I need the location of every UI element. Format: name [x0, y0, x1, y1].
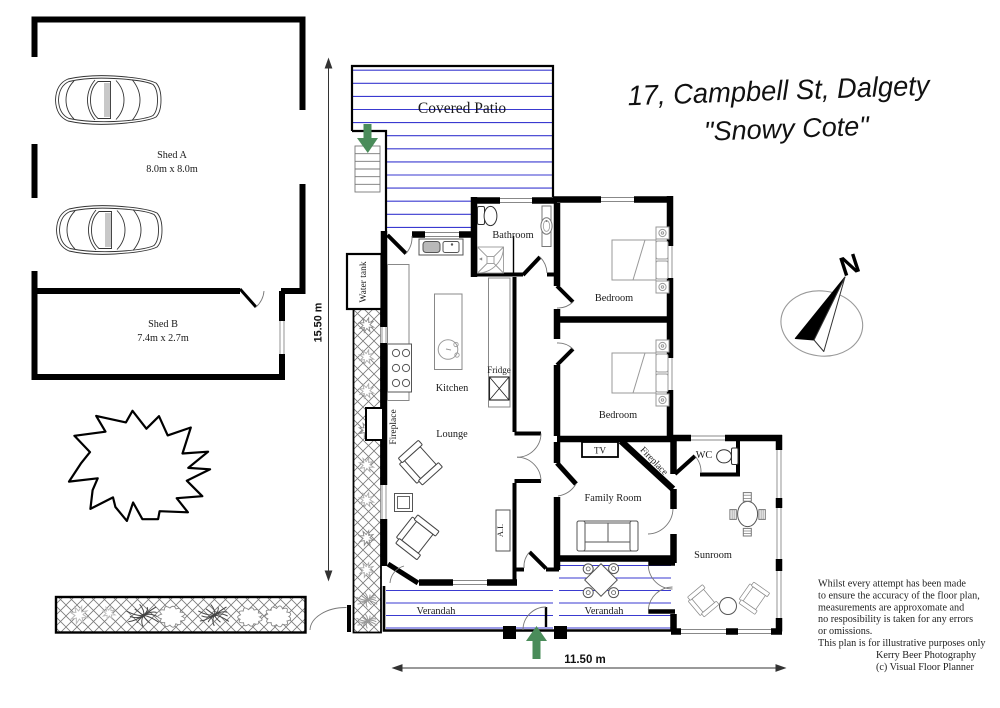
svg-text:measurements are approxomate a: measurements are approxomate and — [818, 602, 964, 613]
svg-text:A.I.: A.I. — [495, 524, 505, 537]
svg-text:11.50 m: 11.50 m — [564, 654, 606, 666]
svg-text:Kerry Beer Photography: Kerry Beer Photography — [876, 650, 977, 661]
svg-text:Water tank: Water tank — [359, 261, 369, 302]
svg-text:"Snowy Cote": "Snowy Cote" — [703, 111, 870, 147]
svg-text:Sunroom: Sunroom — [694, 550, 732, 561]
svg-text:Family Room: Family Room — [585, 493, 642, 504]
svg-text:Verandah: Verandah — [417, 606, 457, 617]
svg-text:Bedroom: Bedroom — [595, 293, 633, 304]
svg-text:Bathroom: Bathroom — [492, 230, 533, 241]
svg-text:Kitchen: Kitchen — [436, 383, 469, 394]
svg-text:Lounge: Lounge — [436, 429, 468, 440]
svg-text:or omissions.: or omissions. — [818, 626, 872, 637]
svg-text:Fireplace: Fireplace — [389, 409, 399, 444]
svg-text:8.0m x 8.0m: 8.0m x 8.0m — [146, 164, 198, 175]
svg-text:Covered Patio: Covered Patio — [418, 100, 506, 117]
svg-text:Shed B: Shed B — [148, 319, 178, 330]
svg-text:Bedroom: Bedroom — [599, 410, 637, 421]
svg-text:Shed A: Shed A — [157, 150, 187, 161]
svg-text:This plan is for illustrative: This plan is for illustrative purposes o… — [818, 638, 986, 649]
svg-text:WC: WC — [696, 450, 713, 461]
svg-text:Verandah: Verandah — [585, 606, 625, 617]
svg-text:(c) Visual Floor Planner: (c) Visual Floor Planner — [876, 662, 975, 673]
svg-text:Whilst every attempt has been: Whilst every attempt has been made — [818, 579, 966, 590]
svg-text:to ensure the accuracy of the: to ensure the accuracy of the floor plan… — [818, 590, 980, 601]
svg-text:Fridge: Fridge — [487, 365, 511, 375]
svg-text:no resposibility is taken for: no resposibility is taken for any errors — [818, 614, 973, 625]
svg-text:7.4m x 2.7m: 7.4m x 2.7m — [137, 333, 189, 344]
svg-text:15.50 m: 15.50 m — [313, 303, 325, 343]
svg-text:TV: TV — [594, 446, 606, 456]
